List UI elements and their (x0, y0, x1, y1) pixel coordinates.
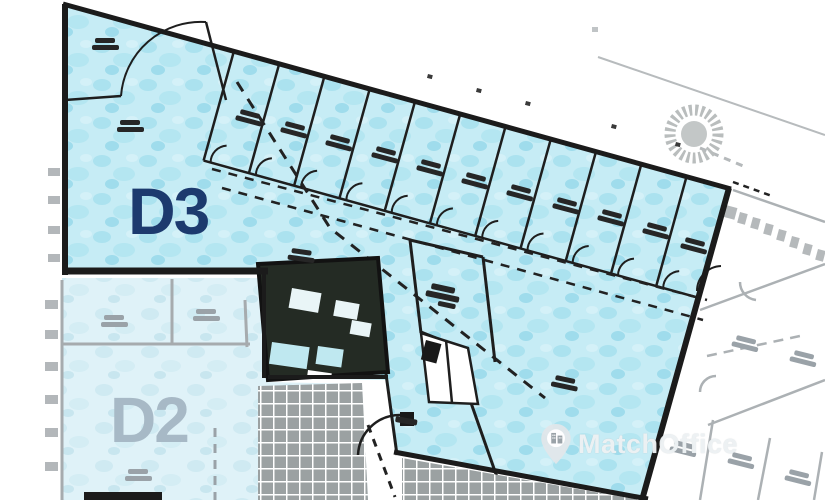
d2-stair-hatch (258, 383, 368, 500)
neighbour-dashed-line (707, 336, 800, 356)
site-boundary-line (598, 57, 825, 135)
core-stairwell (258, 258, 388, 381)
d2-zone-label: D2 (110, 384, 188, 456)
d3-zone-label: D3 (128, 174, 209, 248)
spiral-stair-symbol (670, 110, 718, 158)
d2-edge-marks (45, 168, 60, 471)
survey-dot (592, 27, 598, 32)
exterior-steps-symbol (719, 204, 825, 262)
floorplan-screenshot: D2 (0, 0, 825, 500)
floorplan-canvas: D2 (0, 0, 825, 500)
d2-bottom-wall (84, 492, 162, 500)
neighbour-door-arc (700, 376, 716, 392)
